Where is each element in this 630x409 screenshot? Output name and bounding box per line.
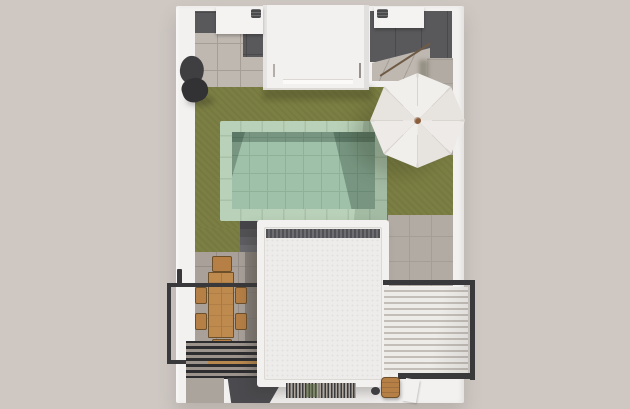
ac-unit-right-fan-icon: [377, 9, 388, 18]
pergola-frame-right: [470, 280, 475, 380]
dining-chair-left-1: [195, 287, 207, 304]
white-louvered-pergola: [384, 287, 468, 374]
dining-chair-top: [212, 256, 232, 272]
railing-left-bar: [167, 283, 171, 364]
dining-chair-right-2: [235, 313, 247, 330]
volume-vent-mark-2: [359, 63, 361, 78]
dining-table: [208, 272, 234, 338]
volume-ledge: [283, 79, 353, 84]
flat-roof-field: [264, 227, 382, 380]
dining-chair-right-1: [235, 287, 247, 304]
wooden-stool: [381, 377, 400, 398]
grating-divider: [318, 383, 320, 398]
railing-post: [177, 269, 182, 284]
grating-green-insert: [306, 384, 317, 397]
floor-grating: [286, 383, 356, 398]
pergola-frame-top: [383, 280, 475, 285]
central-stair-volume: [263, 5, 369, 90]
volume-vent-mark: [273, 64, 275, 77]
railing-top-bar: [167, 283, 260, 287]
ac-unit-left-fan-icon: [251, 9, 261, 18]
flat-roof-skylight-strip: [266, 229, 380, 238]
kettle-grill: [371, 387, 380, 395]
bottom-right-paving: [388, 215, 453, 286]
rooftop-plan-render: [0, 0, 630, 409]
lower-wall-piece: [186, 378, 224, 403]
parasol-center-knob: [414, 117, 421, 124]
dining-chair-left-2: [195, 313, 207, 330]
